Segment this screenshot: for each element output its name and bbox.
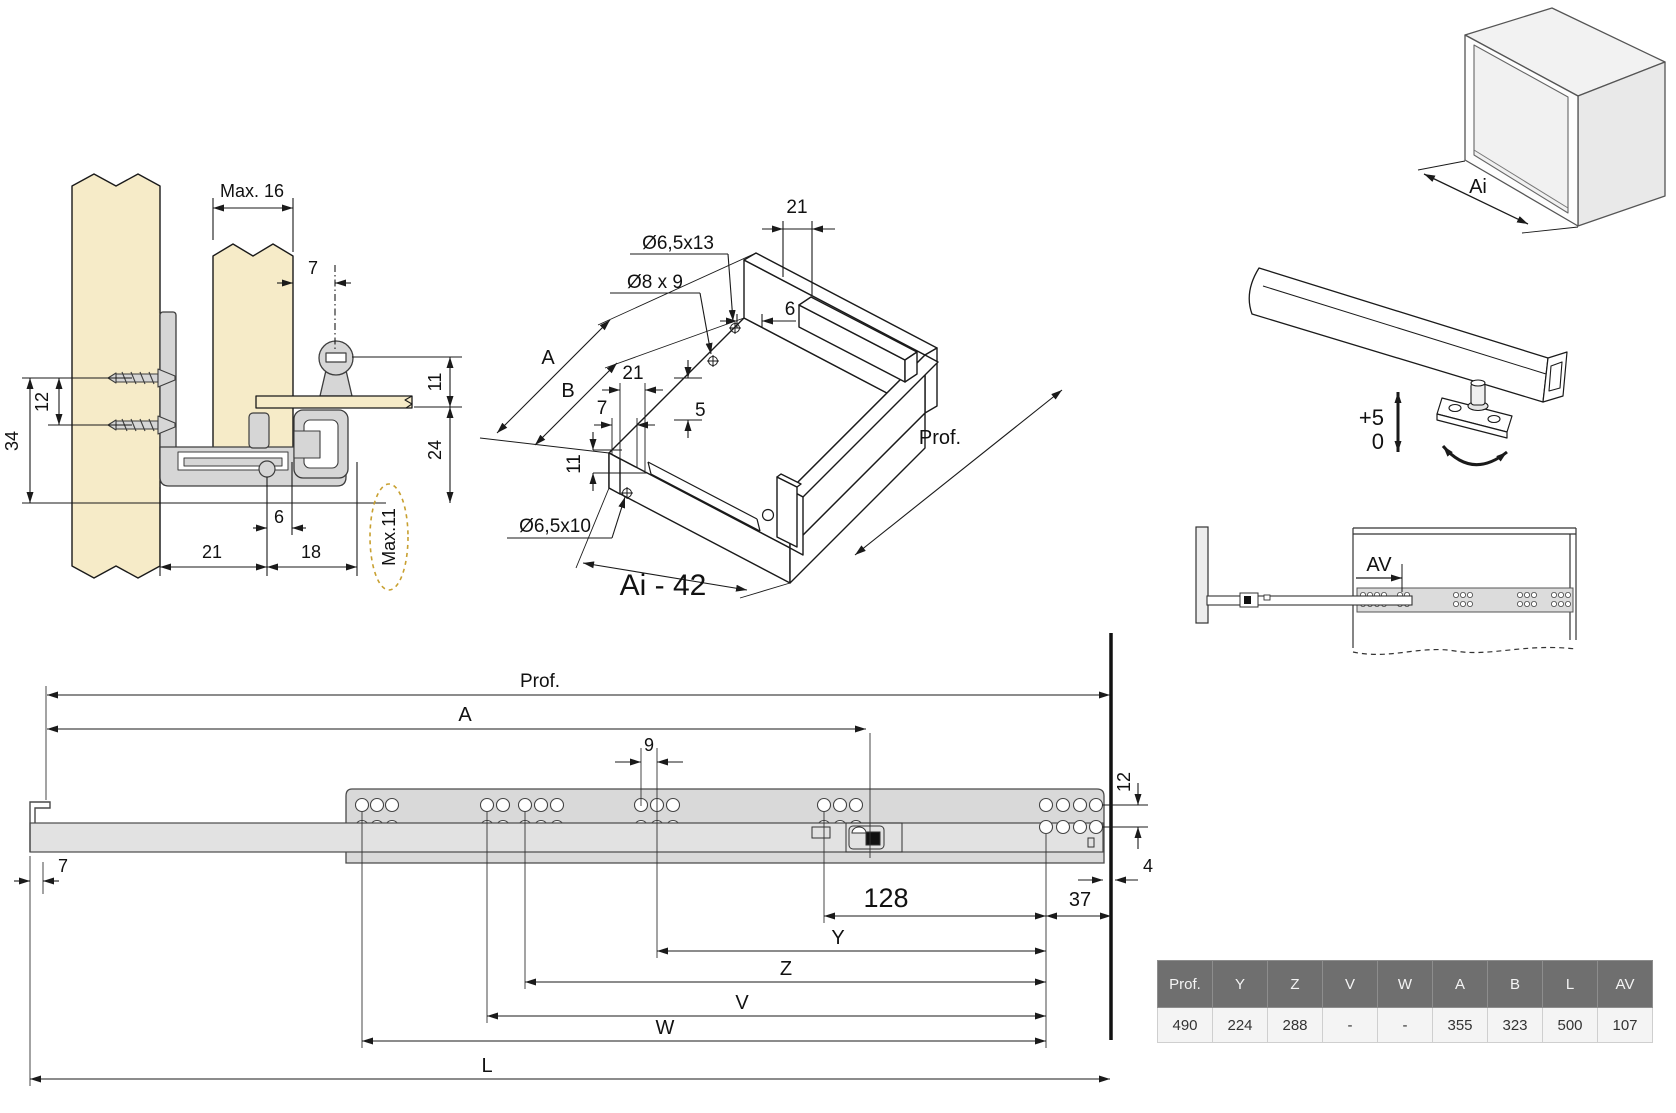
value-prof: 490 [1158, 1008, 1213, 1043]
side-view-dimensions [14, 686, 1148, 1086]
technical-drawing-sheet: Max. 16 7 12 34 11 24 6 21 18 Max.11 [0, 0, 1676, 1108]
spec-table-value-row: 490 224 288 - - 355 323 500 107 [1158, 1008, 1653, 1043]
front-bracket-slot [326, 353, 346, 362]
front-hole [763, 510, 774, 521]
iso-dim-7: 7 [597, 398, 608, 419]
side-7-label: 7 [58, 856, 68, 876]
col-header-l: L [1543, 961, 1598, 1008]
side-prof-label: Prof. [520, 671, 560, 692]
bracket-detail-view: +5 0 [1249, 268, 1567, 465]
side-V-label: V [735, 992, 749, 1014]
value-b: 323 [1488, 1008, 1543, 1043]
side-9-label: 9 [644, 735, 654, 755]
value-w: - [1378, 1008, 1433, 1043]
value-v: - [1323, 1008, 1378, 1043]
box-ai-label: Ai [1469, 176, 1487, 198]
value-a: 355 [1433, 1008, 1488, 1043]
col-header-z: Z [1268, 961, 1323, 1008]
col-header-av: AV [1598, 961, 1653, 1008]
side-view: Prof. A 9 12 7 4 128 37 Y Z V W L [14, 633, 1153, 1086]
slide-hook-tongue [294, 431, 320, 458]
rail-lock-pin [1244, 596, 1251, 604]
dim-max11: Max.11 [379, 508, 399, 566]
dim-34-cross: 34 [2, 431, 22, 451]
side-128-label: 128 [863, 883, 908, 913]
dim-7-cross: 7 [308, 258, 318, 278]
col-header-b: B [1488, 961, 1543, 1008]
iso-dim-5: 5 [695, 400, 706, 421]
rail-small-detail [1264, 595, 1270, 600]
av-label: AV [1366, 554, 1392, 576]
rotation-adjust-arrow [1443, 446, 1507, 465]
adjust-zero-label: 0 [1372, 429, 1384, 454]
col-header-v: V [1323, 961, 1378, 1008]
iso-hole-top-label: Ø6,5x13 [642, 233, 714, 254]
iso-dim-A: A [541, 347, 555, 369]
dim-6-cross: 6 [274, 507, 284, 527]
iso-dim-11: 11 [564, 454, 585, 474]
dimension-spec-table: Prof. Y Z V W A B L AV 490 224 288 - - 3… [1157, 960, 1653, 1043]
side-12-label: 12 [1114, 772, 1134, 792]
cabinet-box-view: Ai [1418, 8, 1665, 233]
front-upright-face [777, 477, 797, 547]
iso-hole-mid-label: Ø8 x 9 [627, 272, 683, 293]
side-Y-label: Y [831, 927, 844, 949]
plate-hole-left [1449, 405, 1461, 412]
side-W-label: W [656, 1017, 675, 1039]
dim-12-cross: 12 [32, 392, 52, 412]
iso-dim-21-top: 21 [786, 197, 807, 218]
drawer-member-bar [30, 823, 1103, 852]
dim-21-cross: 21 [202, 542, 222, 562]
dim-18-cross: 18 [301, 542, 321, 562]
dim-max16: Max. 16 [220, 181, 284, 201]
iso-title: Ai - 42 [620, 569, 707, 602]
rail-tube-opening [1549, 362, 1562, 391]
side-Z-label: Z [780, 958, 792, 980]
drawer-bottom-board [256, 396, 412, 408]
drawer-front-panel [1196, 527, 1208, 623]
extension-view: AV [1196, 527, 1576, 654]
iso-prof-label: Prof. [919, 427, 961, 449]
plate-hole-right [1488, 416, 1500, 423]
dim-24-cross: 24 [425, 440, 445, 460]
value-z: 288 [1268, 1008, 1323, 1043]
side-A-label: A [458, 704, 472, 726]
isometric-view: 21 Ø6,5x13 Ø8 x 9 6 A B 21 7 5 11 Ø6,5x1… [480, 197, 1062, 602]
side-L-label: L [481, 1055, 492, 1077]
value-av: 107 [1598, 1008, 1653, 1043]
value-l: 500 [1543, 1008, 1598, 1043]
adjust-plus5-label: +5 [1359, 405, 1384, 430]
iso-dim-6: 6 [785, 299, 796, 320]
rivet [259, 461, 275, 477]
col-header-w: W [1378, 961, 1433, 1008]
side-37-label: 37 [1069, 889, 1091, 911]
col-header-a: A [1433, 961, 1488, 1008]
extended-rail [1207, 596, 1412, 605]
dim-11-cross: 11 [425, 373, 445, 392]
bracket-rail [1249, 268, 1548, 402]
cross-section-view: Max. 16 7 12 34 11 24 6 21 18 Max.11 [2, 174, 462, 590]
side-4-label: 4 [1143, 856, 1153, 876]
iso-dim-21-mid: 21 [622, 363, 643, 384]
pin-top [1471, 380, 1485, 386]
col-header-y: Y [1213, 961, 1268, 1008]
iso-dim-B: B [561, 380, 574, 402]
iso-hole-front-label: Ø6,5x10 [519, 516, 591, 537]
locating-pin [249, 413, 269, 448]
value-y: 224 [1213, 1008, 1268, 1043]
col-header-prof: Prof. [1158, 961, 1213, 1008]
spec-table-header-row: Prof. Y Z V W A B L AV [1158, 961, 1653, 1008]
drawing-canvas: Max. 16 7 12 34 11 24 6 21 18 Max.11 [0, 0, 1676, 1108]
